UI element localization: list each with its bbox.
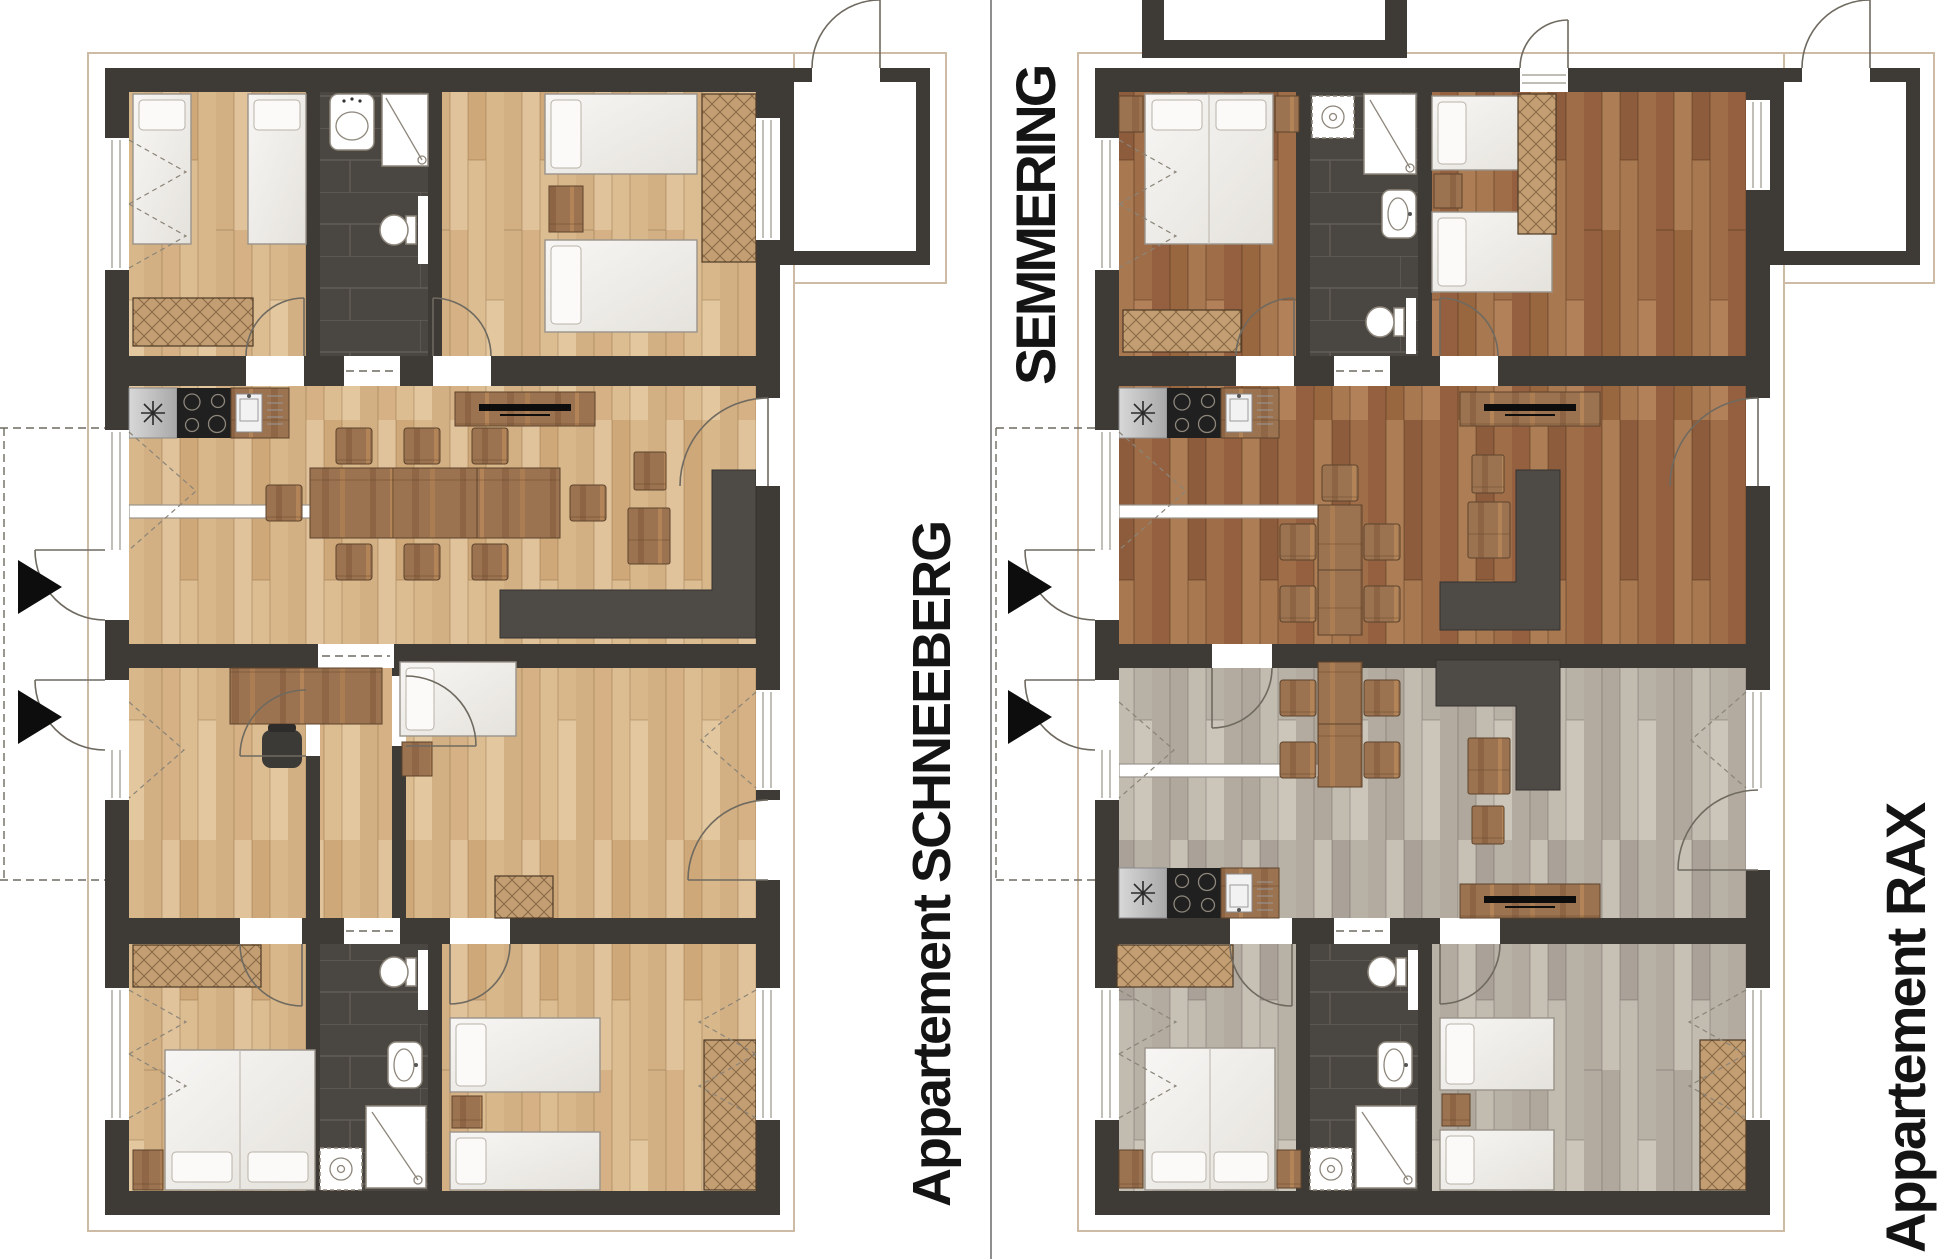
wardrobe xyxy=(702,94,756,262)
kitchen-unit xyxy=(129,388,289,438)
pillow xyxy=(1446,1024,1474,1084)
side-table xyxy=(1472,455,1504,493)
apartment-schneeberg-plan xyxy=(0,0,946,1231)
dining-chair xyxy=(1280,586,1316,622)
toilet xyxy=(1366,307,1394,337)
pillow xyxy=(551,100,581,168)
nightstand xyxy=(549,186,583,232)
office-chair xyxy=(262,730,302,768)
nightstand xyxy=(402,742,432,776)
pillow xyxy=(551,246,581,324)
washing-machine xyxy=(1310,1148,1352,1190)
apartment-semmering-rax-plan xyxy=(996,0,1934,1231)
pillow xyxy=(1446,1136,1474,1184)
pillow xyxy=(248,1152,308,1182)
pillow xyxy=(456,1024,486,1086)
nightstand xyxy=(452,1096,482,1128)
pillow xyxy=(1214,1152,1268,1182)
toilet-partition xyxy=(1406,298,1416,354)
dining-chair xyxy=(1322,465,1358,501)
dining-chair xyxy=(1280,524,1316,560)
pillow xyxy=(254,100,300,130)
toilet xyxy=(1368,957,1396,987)
dining-chair xyxy=(1280,742,1316,778)
pillow xyxy=(1438,218,1466,286)
balcony xyxy=(780,0,930,265)
entrance-marker-icon xyxy=(18,560,62,614)
toilet-partition xyxy=(1408,950,1418,1010)
dining-table xyxy=(310,468,560,538)
dining-chair xyxy=(1364,524,1400,560)
terrace-door xyxy=(1746,790,1770,870)
dining-chair xyxy=(404,544,440,580)
entrance-door xyxy=(1095,680,1119,750)
label-appartement-rax: Appartement RAX xyxy=(1874,802,1937,1253)
kitchen-unit xyxy=(1119,388,1279,438)
dining-chair xyxy=(336,428,372,464)
label-appartement-schneeberg: Appartement SCHNEEBERG xyxy=(902,522,962,1207)
kitchen-unit xyxy=(1119,868,1279,918)
toilet-tank xyxy=(1394,308,1404,336)
dining-chair xyxy=(336,544,372,580)
toilet xyxy=(380,957,408,987)
wardrobe xyxy=(1123,310,1241,352)
dining-chair xyxy=(266,485,302,521)
terrace xyxy=(1142,0,1407,58)
top-window xyxy=(1520,68,1568,92)
dining-chair xyxy=(472,544,508,580)
terrace-door xyxy=(756,800,780,880)
toilet xyxy=(380,215,408,245)
wardrobe xyxy=(495,876,553,918)
pillow xyxy=(139,100,185,130)
dining-chair xyxy=(570,485,606,521)
nightstand xyxy=(1275,96,1299,132)
pillow xyxy=(1216,100,1266,130)
dining-chair xyxy=(1364,742,1400,778)
entrance-marker-icon xyxy=(18,690,62,744)
wardrobe xyxy=(1700,1040,1746,1190)
entrance-marker-icon xyxy=(1008,690,1052,744)
entrance-door xyxy=(1095,550,1119,620)
nightstand xyxy=(1119,1150,1143,1188)
balcony xyxy=(1770,0,1920,265)
dining-chair xyxy=(472,428,508,464)
pillow xyxy=(1152,100,1202,130)
wardrobe xyxy=(1518,94,1556,234)
balcony-door xyxy=(812,64,880,86)
dining-chair xyxy=(404,428,440,464)
dining-chair xyxy=(1280,680,1316,716)
entrance-marker-icon xyxy=(1008,560,1052,614)
balcony-door xyxy=(1802,64,1870,86)
wardrobe xyxy=(133,298,253,346)
wardrobe xyxy=(133,945,261,987)
label-semmering: SEMMERING xyxy=(1004,66,1067,385)
wardrobe xyxy=(1117,945,1233,987)
pillow xyxy=(1152,1152,1206,1182)
nightstand xyxy=(1119,96,1143,132)
tv-sideboard xyxy=(455,392,595,426)
pillow xyxy=(456,1138,486,1184)
washing-machine xyxy=(1312,96,1354,138)
nightstand xyxy=(1277,1150,1301,1188)
floorplan-canvas: Appartement SCHNEEBERG SEMMERING Apparte… xyxy=(0,0,1939,1259)
coffee-table xyxy=(1468,502,1510,558)
side-table xyxy=(634,452,666,490)
washing-machine xyxy=(320,1148,362,1190)
toilet-partition xyxy=(418,950,428,1010)
dining-chair xyxy=(1364,586,1400,622)
wardrobe xyxy=(704,1040,756,1190)
coffee-table xyxy=(1468,738,1510,794)
pillow xyxy=(172,1152,232,1182)
tv-sideboard xyxy=(1460,392,1600,426)
floorplan-sheet: Appartement SCHNEEBERG SEMMERING Apparte… xyxy=(0,0,1939,1259)
toilet-tank xyxy=(1396,958,1406,986)
entrance-door xyxy=(105,550,129,620)
side-table xyxy=(1472,806,1504,844)
dining-chair xyxy=(1364,680,1400,716)
entrance-door xyxy=(105,680,129,750)
coffee-table xyxy=(628,508,670,564)
partition-wall xyxy=(1119,505,1319,518)
pillow xyxy=(1438,102,1466,164)
nightstand xyxy=(1442,1094,1470,1126)
tv-sideboard xyxy=(1460,884,1600,918)
nightstand xyxy=(133,1150,163,1190)
toilet-partition xyxy=(418,196,428,264)
nightstand xyxy=(1434,174,1462,208)
